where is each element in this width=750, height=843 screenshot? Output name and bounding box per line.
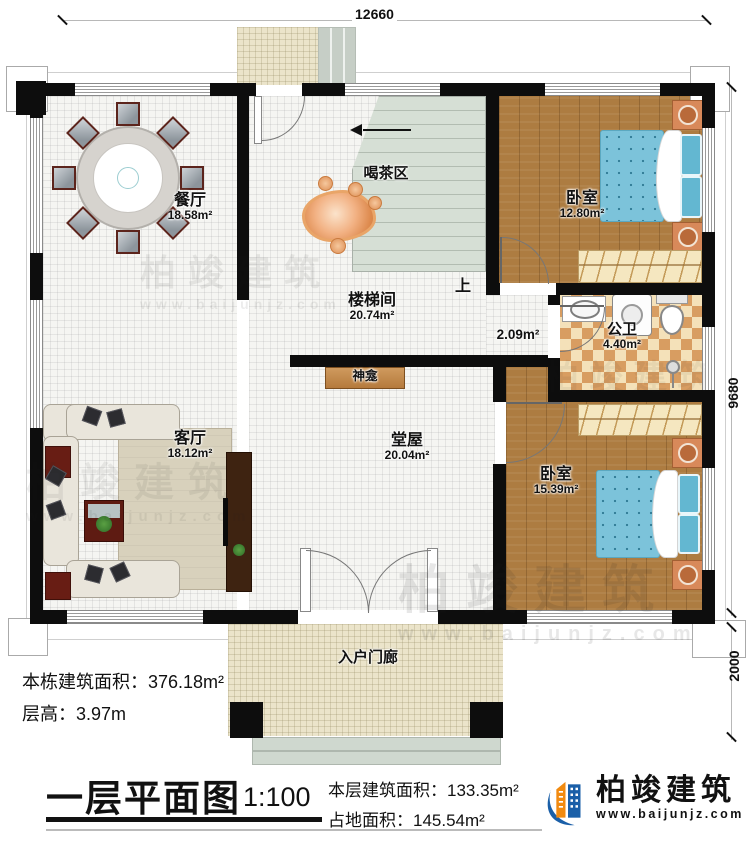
staircase xyxy=(352,96,486,272)
stair-direction-arrow xyxy=(350,124,362,136)
floor-height-note: 层高：3.97m xyxy=(22,700,126,726)
nightstand xyxy=(672,560,704,590)
wardrobe xyxy=(578,250,702,283)
porch-column xyxy=(230,702,263,738)
brand-logo: 柏竣建筑 www.baijunjz.com xyxy=(538,774,744,828)
lamp-icon xyxy=(678,227,698,247)
pillow xyxy=(678,474,700,514)
porch-step xyxy=(252,737,501,751)
back-porch-floor xyxy=(237,27,318,85)
building-area-note: 本栋建筑面积：376.18m² xyxy=(22,668,224,694)
window xyxy=(345,83,440,96)
wall-segment xyxy=(30,253,43,300)
side-table xyxy=(45,572,71,600)
dimension-right-porch: 2000 xyxy=(726,633,742,699)
floor-area-note: 本层建筑面积：133.35m² xyxy=(328,776,519,801)
plant-icon xyxy=(233,544,245,556)
corridor-area-label: 2.09m² xyxy=(497,328,540,343)
window xyxy=(545,83,660,96)
corridor-floor xyxy=(486,295,548,355)
dining-room-label: 餐厅 18.58m² xyxy=(168,192,213,222)
dining-table-center xyxy=(117,167,139,189)
window xyxy=(30,300,43,428)
wall-segment xyxy=(493,367,506,402)
nightstand xyxy=(672,438,704,468)
brand-url: www.baijunjz.com xyxy=(596,807,744,821)
wall-segment xyxy=(548,358,560,390)
dining-chair xyxy=(116,102,140,126)
tv-cabinet xyxy=(226,452,252,592)
plan-title: 一层平面图 xyxy=(46,768,241,822)
entry-porch-floor xyxy=(228,624,503,736)
wardrobe xyxy=(578,404,702,436)
wall-segment xyxy=(237,96,249,300)
tea-cushion xyxy=(368,196,382,210)
bedroom-top-label: 卧室 12.80m² xyxy=(560,190,605,220)
wall-segment xyxy=(702,232,715,327)
dining-chair xyxy=(52,166,76,190)
wall-segment xyxy=(440,83,545,96)
dimension-right-main: 9680 xyxy=(725,360,741,426)
lamp-icon xyxy=(678,565,698,585)
wall-segment xyxy=(493,464,506,610)
shower-arm xyxy=(672,374,674,388)
wall-segment xyxy=(548,390,715,402)
brand-logo-icon xyxy=(538,774,588,828)
hall-label: 堂屋 20.04m² xyxy=(385,432,430,462)
back-porch-steps xyxy=(318,27,356,85)
stair-direction-line xyxy=(363,129,411,131)
dining-chair xyxy=(180,166,204,190)
window xyxy=(527,610,672,624)
land-area-note: 占地面积：145.54m² xyxy=(328,806,485,831)
brand-name: 柏竣建筑 xyxy=(596,774,744,807)
wall-segment xyxy=(203,610,298,624)
wall-segment xyxy=(290,355,548,367)
nightstand xyxy=(672,100,704,130)
bedroom-bottom-label: 卧室 15.39m² xyxy=(534,466,579,496)
wall-segment xyxy=(302,83,345,96)
tea-cushion xyxy=(330,238,346,254)
window xyxy=(75,83,210,96)
pillow xyxy=(680,176,702,218)
plant-icon xyxy=(96,516,112,532)
window xyxy=(702,327,715,390)
nightstand xyxy=(672,222,704,252)
pillow xyxy=(678,514,700,554)
dimension-line xyxy=(731,88,732,616)
pillow xyxy=(680,134,702,176)
wall-segment xyxy=(702,83,715,128)
floor-plan-canvas: 餐厅 18.58m² 喝茶区 楼梯间 20.74m² 上 卧室 12.80m² … xyxy=(0,0,750,843)
tea-area-label: 喝茶区 xyxy=(363,166,408,182)
wall-segment xyxy=(548,295,560,305)
wall-segment xyxy=(438,610,527,624)
tea-cushion xyxy=(348,182,363,197)
dining-chair xyxy=(116,230,140,254)
window xyxy=(702,468,715,570)
entry-porch-label: 入户门廊 xyxy=(338,650,398,666)
porch-column xyxy=(470,702,503,738)
bed-sheet xyxy=(652,470,678,558)
tv-icon xyxy=(223,498,228,546)
plan-scale: 1:100 xyxy=(243,782,311,813)
dimension-top: 12660 xyxy=(352,6,397,22)
window xyxy=(67,610,203,624)
back-door-leaf xyxy=(254,96,262,144)
wall-segment xyxy=(486,96,499,283)
lamp-icon xyxy=(678,105,698,125)
lamp-icon xyxy=(678,443,698,463)
stairs-up-label: 上 xyxy=(455,278,471,295)
living-room-label: 客厅 18.12m² xyxy=(168,430,213,460)
window xyxy=(702,128,715,232)
wall-segment xyxy=(486,283,500,295)
wall-segment xyxy=(556,283,715,295)
window xyxy=(30,118,43,253)
stairwell-label: 楼梯间 20.74m² xyxy=(348,292,396,322)
wall-segment xyxy=(702,570,715,624)
shrine-label: 神龛 xyxy=(352,370,377,384)
bathroom-label: 公卫 4.40m² xyxy=(603,322,641,351)
shower-head xyxy=(666,360,680,374)
corner-pillar xyxy=(16,81,46,115)
title-underline-thick xyxy=(46,817,322,822)
wall-segment xyxy=(210,83,256,96)
porch-step xyxy=(252,751,501,765)
tea-cushion xyxy=(318,176,333,191)
bed xyxy=(596,470,660,558)
toilet-tank xyxy=(656,294,688,304)
bed-sheet xyxy=(656,130,682,222)
wall-segment xyxy=(30,428,43,624)
bed xyxy=(600,130,664,222)
